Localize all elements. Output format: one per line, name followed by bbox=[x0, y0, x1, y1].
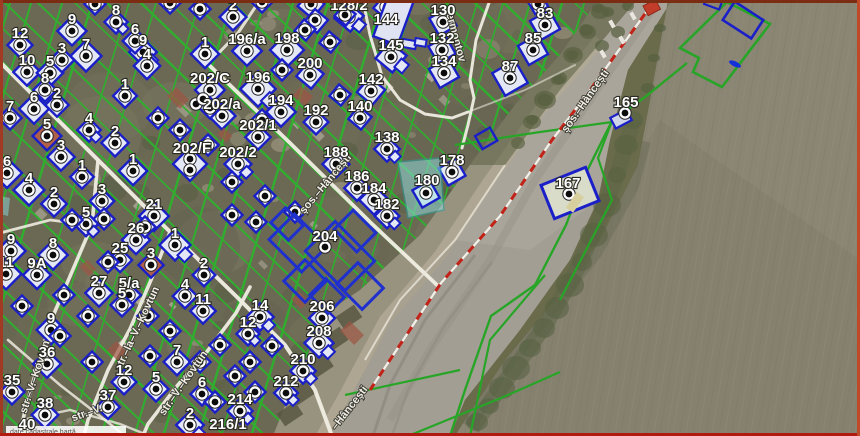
svg-text:142: 142 bbox=[358, 71, 383, 88]
svg-text:2: 2 bbox=[53, 85, 61, 102]
svg-text:6: 6 bbox=[198, 374, 206, 391]
svg-text:4: 4 bbox=[143, 46, 152, 63]
svg-text:216/1: 216/1 bbox=[209, 416, 247, 433]
svg-text:210: 210 bbox=[290, 351, 315, 368]
svg-text:4: 4 bbox=[85, 110, 94, 127]
svg-text:9: 9 bbox=[7, 231, 15, 248]
svg-text:25: 25 bbox=[112, 240, 129, 257]
svg-text:1: 1 bbox=[78, 157, 86, 174]
svg-text:35: 35 bbox=[4, 372, 21, 389]
svg-text:36: 36 bbox=[39, 344, 56, 361]
svg-text:1: 1 bbox=[201, 34, 209, 51]
svg-text:11: 11 bbox=[195, 291, 211, 308]
svg-text:184: 184 bbox=[361, 180, 387, 197]
svg-text:202/F: 202/F bbox=[173, 140, 211, 157]
svg-text:188: 188 bbox=[323, 144, 348, 161]
svg-text:2: 2 bbox=[50, 184, 58, 201]
svg-text:5: 5 bbox=[46, 53, 54, 70]
svg-text:12: 12 bbox=[12, 25, 29, 42]
svg-text:5: 5 bbox=[152, 369, 160, 386]
svg-text:8: 8 bbox=[41, 70, 49, 87]
svg-text:2: 2 bbox=[186, 405, 194, 422]
svg-text:5: 5 bbox=[82, 204, 90, 221]
svg-text:3: 3 bbox=[57, 137, 65, 154]
svg-text:87: 87 bbox=[502, 58, 519, 75]
svg-text:2: 2 bbox=[200, 255, 208, 272]
svg-text:165: 165 bbox=[613, 94, 638, 111]
svg-text:7: 7 bbox=[6, 98, 14, 115]
svg-text:1: 1 bbox=[171, 225, 179, 242]
svg-text:3: 3 bbox=[147, 245, 155, 262]
svg-text:37: 37 bbox=[100, 387, 117, 404]
svg-text:206: 206 bbox=[309, 298, 334, 315]
svg-text:194: 194 bbox=[268, 92, 294, 109]
svg-text:167: 167 bbox=[555, 175, 580, 192]
svg-text:8: 8 bbox=[112, 2, 120, 19]
svg-text:202/2: 202/2 bbox=[219, 144, 257, 161]
svg-text:132: 132 bbox=[429, 30, 454, 47]
svg-text:3: 3 bbox=[58, 40, 66, 57]
svg-text:14: 14 bbox=[252, 297, 269, 314]
svg-text:202/1: 202/1 bbox=[239, 117, 277, 134]
svg-text:6: 6 bbox=[30, 89, 38, 106]
svg-text:6: 6 bbox=[3, 153, 11, 170]
svg-text:9: 9 bbox=[68, 11, 76, 28]
svg-text:212: 212 bbox=[273, 373, 298, 390]
svg-text:21: 21 bbox=[146, 196, 163, 213]
svg-text:12: 12 bbox=[240, 314, 257, 331]
svg-text:138: 138 bbox=[374, 129, 399, 146]
svg-text:9A: 9A bbox=[27, 255, 46, 272]
svg-text:40: 40 bbox=[19, 416, 36, 433]
svg-text:178: 178 bbox=[439, 152, 464, 169]
svg-text:1: 1 bbox=[121, 76, 129, 93]
svg-text:196: 196 bbox=[245, 69, 270, 86]
svg-text:180: 180 bbox=[414, 172, 439, 189]
svg-text:7: 7 bbox=[82, 36, 90, 53]
svg-text:214: 214 bbox=[227, 391, 253, 408]
svg-text:26: 26 bbox=[128, 220, 145, 237]
svg-text:204: 204 bbox=[312, 228, 338, 245]
svg-text:202/C: 202/C bbox=[190, 70, 230, 87]
svg-text:192: 192 bbox=[303, 102, 328, 119]
svg-text:12: 12 bbox=[116, 362, 133, 379]
svg-text:144: 144 bbox=[373, 11, 399, 28]
svg-text:1: 1 bbox=[129, 151, 137, 168]
svg-text:198: 198 bbox=[274, 30, 299, 47]
svg-text:9: 9 bbox=[47, 310, 55, 327]
svg-text:4: 4 bbox=[181, 276, 190, 293]
svg-text:6: 6 bbox=[131, 21, 139, 38]
svg-text:5: 5 bbox=[118, 285, 126, 302]
svg-text:182: 182 bbox=[374, 196, 399, 213]
svg-text:8: 8 bbox=[49, 235, 57, 252]
svg-text:2: 2 bbox=[111, 123, 119, 140]
svg-text:130: 130 bbox=[430, 2, 455, 19]
svg-text:27: 27 bbox=[91, 273, 108, 290]
svg-text:140: 140 bbox=[347, 98, 372, 115]
svg-text:5: 5 bbox=[43, 116, 51, 133]
svg-text:134: 134 bbox=[431, 53, 457, 70]
svg-text:200: 200 bbox=[297, 55, 322, 72]
svg-text:85: 85 bbox=[525, 30, 542, 47]
svg-text:38: 38 bbox=[37, 395, 54, 412]
svg-text:10: 10 bbox=[19, 52, 36, 69]
svg-text:208: 208 bbox=[306, 323, 331, 340]
svg-text:196/a: 196/a bbox=[228, 31, 266, 48]
svg-text:3: 3 bbox=[98, 181, 106, 198]
svg-text:202/a: 202/a bbox=[203, 96, 241, 113]
svg-text:83: 83 bbox=[537, 5, 554, 22]
svg-text:145: 145 bbox=[378, 37, 403, 54]
svg-text:4: 4 bbox=[25, 170, 34, 187]
svg-text:7: 7 bbox=[173, 342, 181, 359]
